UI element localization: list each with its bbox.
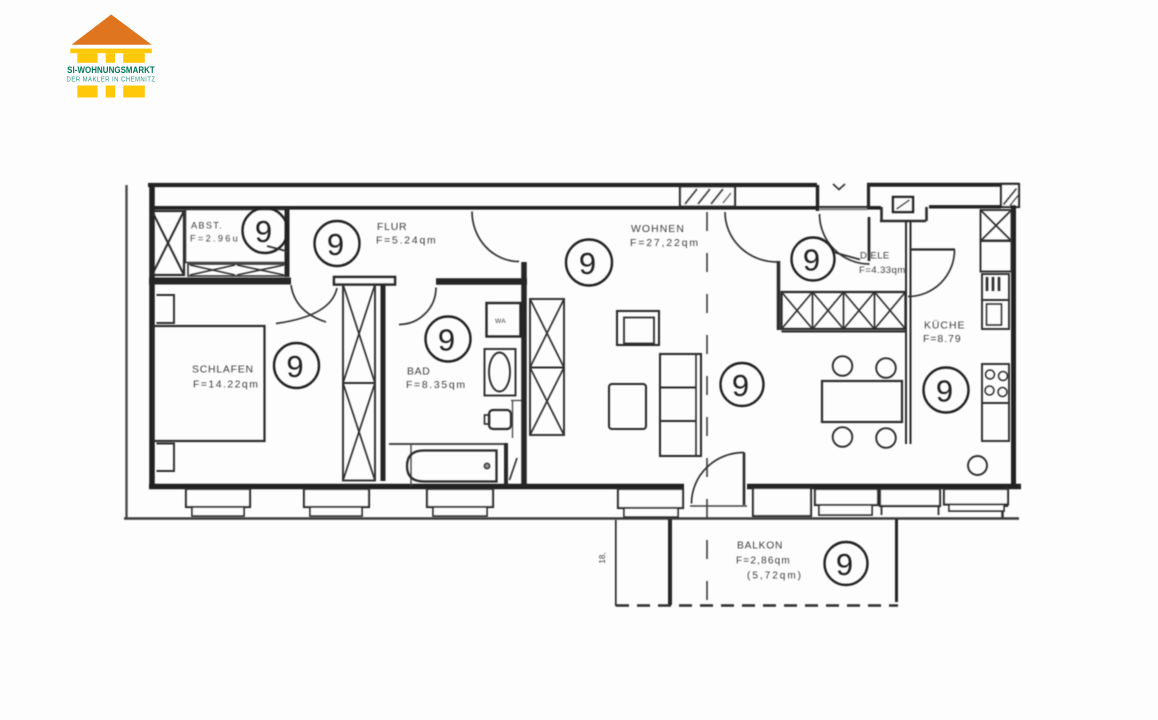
svg-text:(5,72qm): (5,72qm) xyxy=(747,571,803,582)
svg-text:9: 9 xyxy=(286,349,303,384)
svg-text:F=2.96u: F=2.96u xyxy=(190,234,240,244)
svg-text:KÜCHE: KÜCHE xyxy=(924,320,965,332)
svg-text:18,: 18, xyxy=(598,552,607,563)
svg-text:F=27,22qm: F=27,22qm xyxy=(630,238,700,249)
svg-text:SI-WOHNUNGSMARKT: SI-WOHNUNGSMARKT xyxy=(67,64,155,75)
svg-text:WOHNEN: WOHNEN xyxy=(631,224,685,235)
svg-text:F=14.22qm: F=14.22qm xyxy=(193,380,259,391)
svg-text:9: 9 xyxy=(255,214,272,249)
svg-text:DIELE: DIELE xyxy=(860,251,890,262)
svg-text:WA: WA xyxy=(495,318,506,325)
svg-text:9: 9 xyxy=(327,227,344,262)
svg-text:9: 9 xyxy=(836,547,853,582)
svg-text:ABST.: ABST. xyxy=(191,221,223,231)
svg-text:9: 9 xyxy=(936,373,953,408)
svg-text:F=5.24qm: F=5.24qm xyxy=(376,236,437,247)
svg-text:SCHLAFEN: SCHLAFEN xyxy=(192,365,254,376)
svg-text:F=8.35qm: F=8.35qm xyxy=(406,380,467,391)
svg-text:BALKON: BALKON xyxy=(737,541,783,552)
svg-text:F=4.33qm: F=4.33qm xyxy=(859,265,906,276)
svg-text:FLUR: FLUR xyxy=(377,222,407,233)
svg-text:F=8.79: F=8.79 xyxy=(923,334,962,345)
svg-text:F=2,86qm: F=2,86qm xyxy=(736,556,791,567)
svg-text:9: 9 xyxy=(579,246,596,281)
svg-text:DER MAKLER IN CHEMNITZ: DER MAKLER IN CHEMNITZ xyxy=(67,76,156,84)
svg-text:BAD: BAD xyxy=(407,367,430,378)
svg-text:9: 9 xyxy=(803,242,820,277)
svg-text:9: 9 xyxy=(438,322,455,357)
svg-text:9: 9 xyxy=(732,368,749,403)
